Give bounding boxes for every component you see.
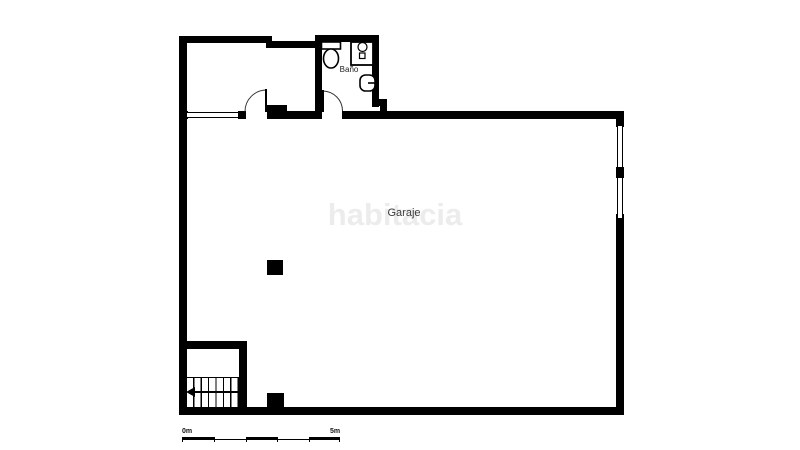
wall-pillar-top bbox=[267, 105, 287, 119]
scale-start-label: 0m bbox=[182, 428, 192, 435]
door-arc-storage-room bbox=[244, 89, 267, 112]
wall-top-step bbox=[266, 41, 322, 48]
bidet-icon bbox=[359, 74, 376, 92]
wall-pillar-bottom bbox=[267, 393, 284, 407]
scale-segment bbox=[214, 439, 246, 440]
scale-tick bbox=[214, 437, 215, 442]
column-free bbox=[267, 260, 283, 275]
scale-segment bbox=[277, 439, 309, 440]
scale-tick bbox=[277, 437, 278, 442]
floor-plan: habitacia Garaje Baño bbox=[0, 0, 800, 450]
scale-segment bbox=[246, 437, 277, 440]
window-right-upper bbox=[617, 126, 623, 167]
wall-garage-top-mid bbox=[285, 111, 322, 119]
window-top bbox=[187, 112, 238, 118]
wall-stair-top bbox=[179, 341, 247, 349]
scale-end-label: 5m bbox=[330, 428, 340, 435]
wall-right-corner bbox=[616, 111, 624, 127]
scale-segment bbox=[309, 437, 340, 440]
stairs-arrow bbox=[191, 391, 239, 393]
window-right-lower bbox=[617, 178, 623, 218]
scale-tick bbox=[309, 437, 310, 442]
scale-segment bbox=[182, 437, 214, 440]
sink-icon bbox=[350, 41, 374, 66]
scale-tick bbox=[246, 437, 247, 442]
stairs-arrow-head-icon bbox=[186, 387, 195, 397]
door-arc-bathroom bbox=[322, 90, 343, 112]
wall-right-mid-block bbox=[616, 167, 624, 178]
wall-top-left-room bbox=[179, 36, 272, 43]
door-jamb-block bbox=[238, 111, 246, 119]
wall-garage-top-right bbox=[342, 111, 616, 119]
toilet-icon bbox=[320, 41, 342, 69]
wall-left bbox=[179, 36, 187, 415]
scale-tick bbox=[182, 437, 183, 442]
wall-right-lower bbox=[616, 218, 624, 415]
garage-room-label: Garaje bbox=[364, 207, 444, 219]
wall-stair-right bbox=[239, 341, 247, 415]
scale-tick bbox=[339, 437, 340, 442]
